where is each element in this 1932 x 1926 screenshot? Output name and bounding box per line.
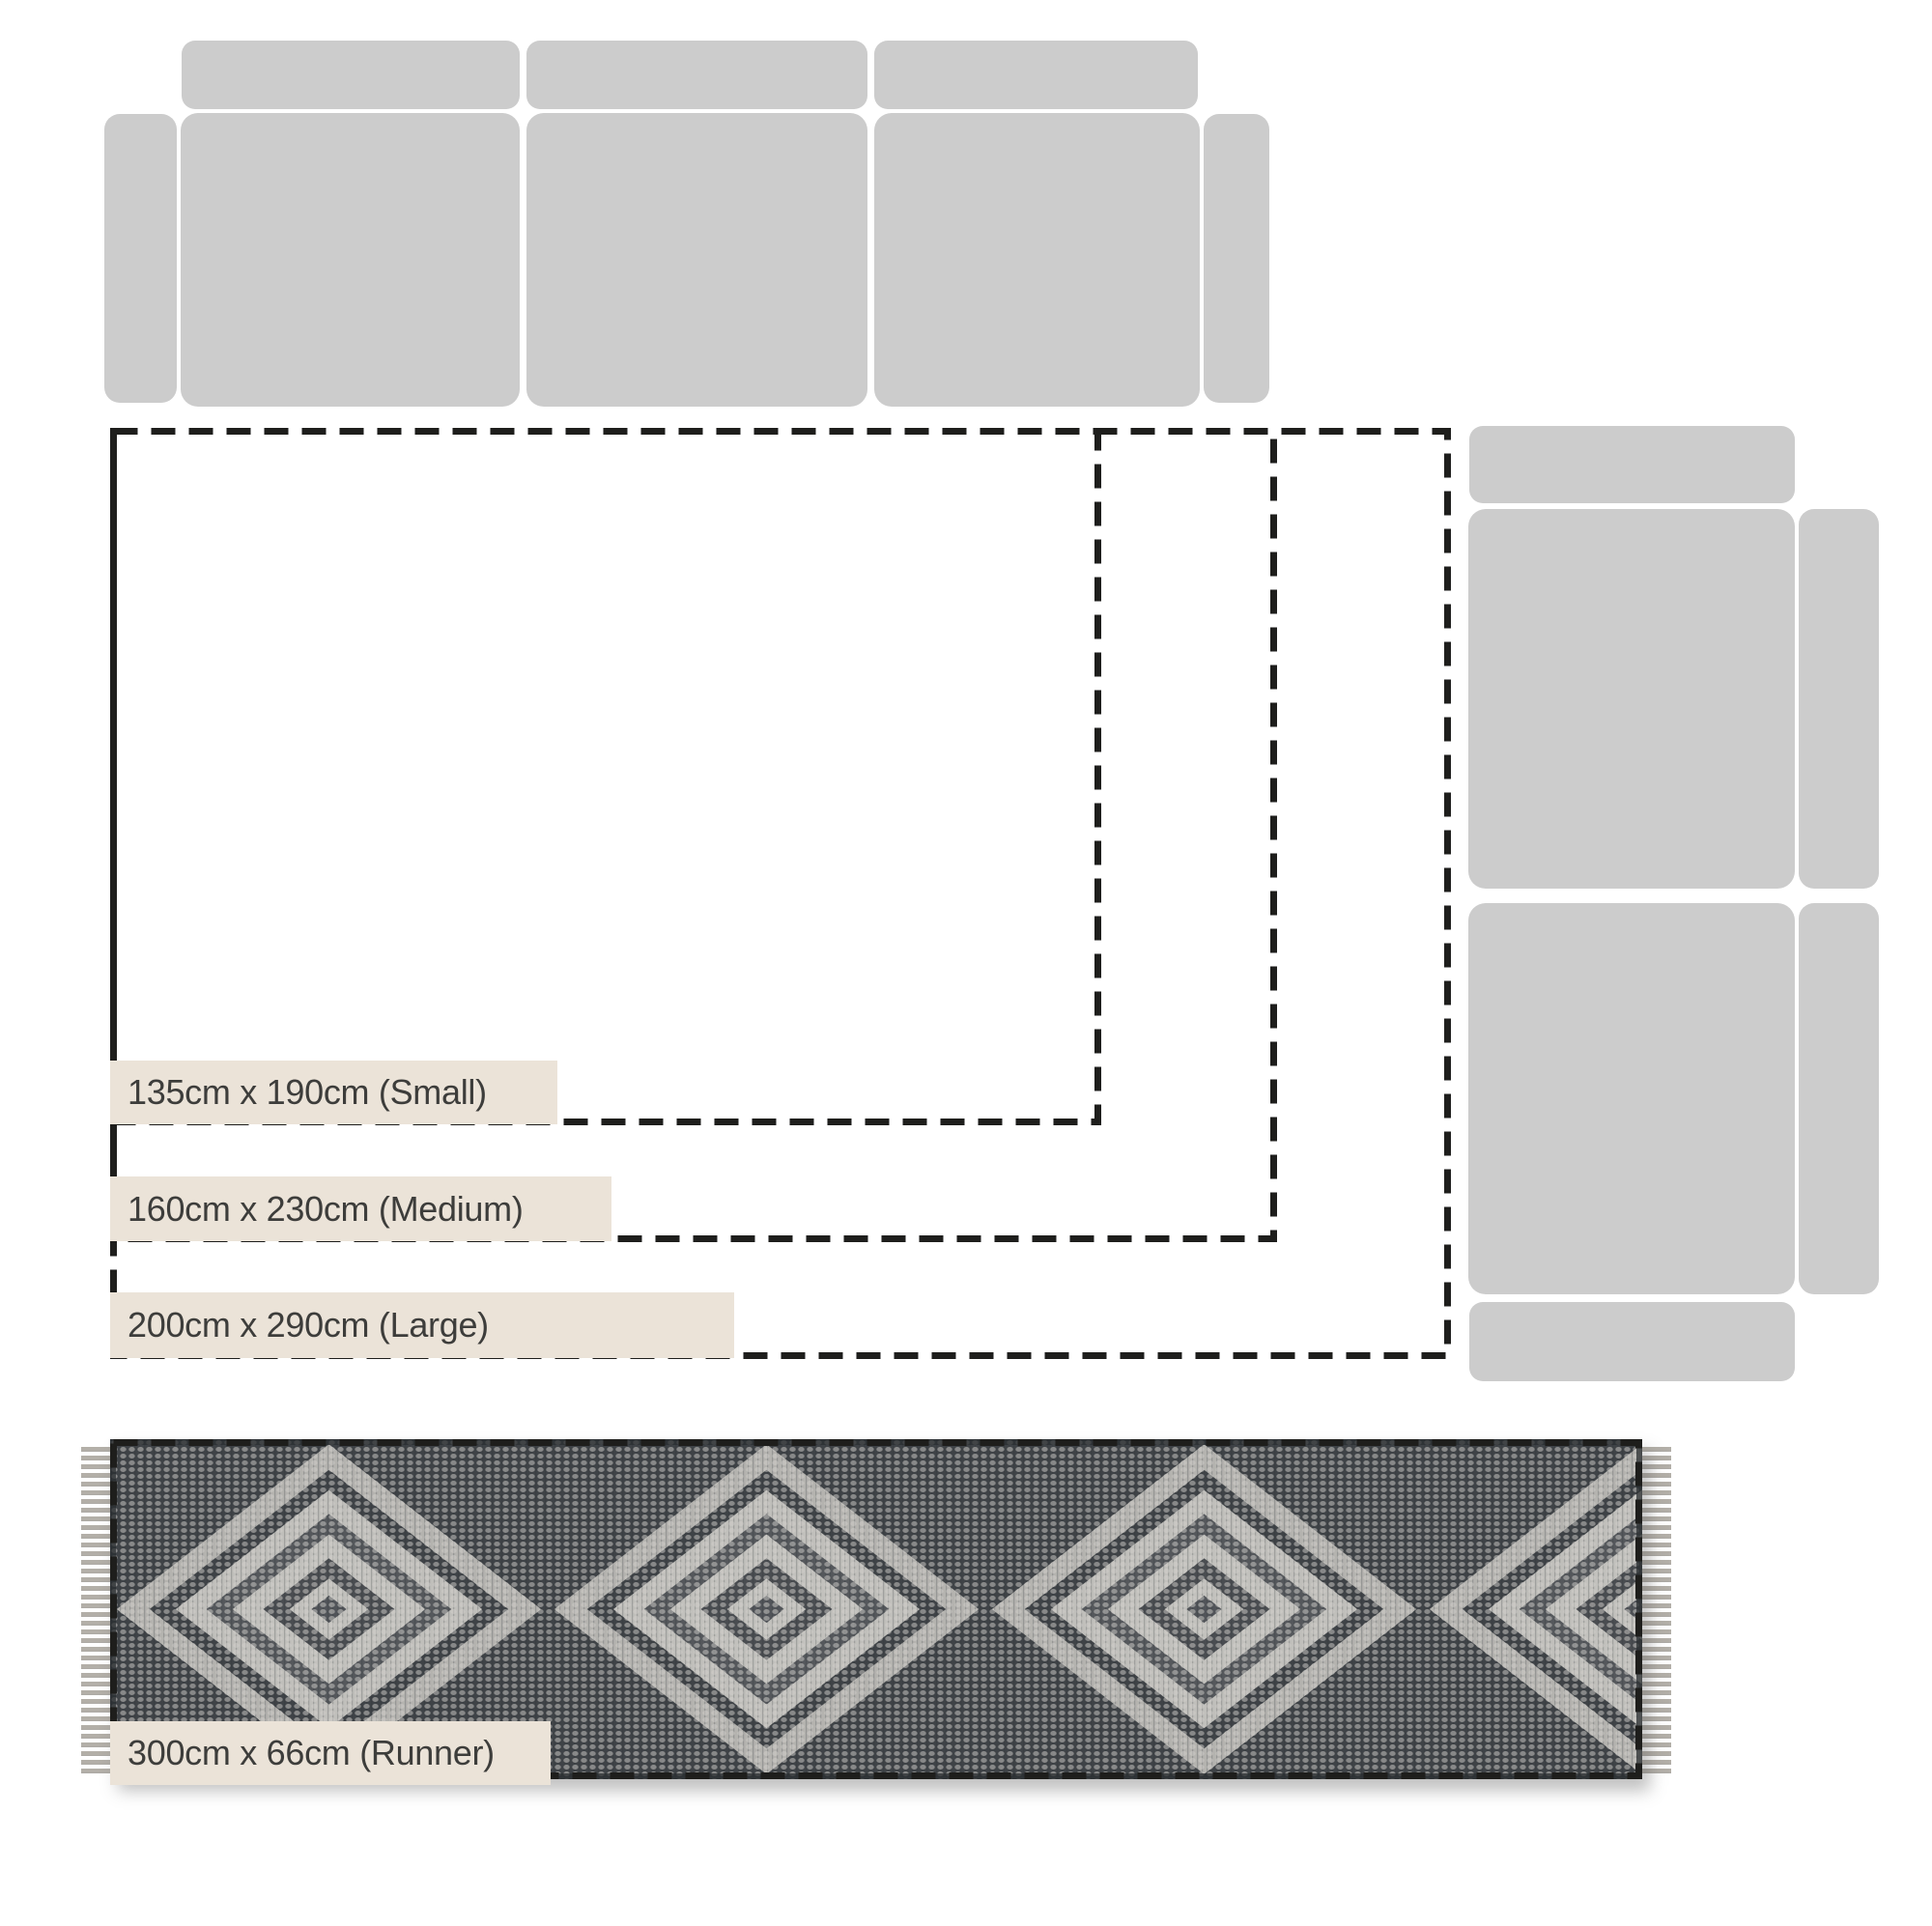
sofa-armrest-left bbox=[104, 114, 177, 403]
size-label-large: 200cm x 290cm (Large) bbox=[110, 1292, 734, 1358]
sofa-seat-cushion bbox=[1468, 509, 1795, 889]
sofa-back-cushion bbox=[1469, 426, 1795, 503]
rug-fringe-right bbox=[1642, 1447, 1671, 1773]
size-label-small: 135cm x 190cm (Small) bbox=[110, 1061, 557, 1124]
sofa-seat-cushion bbox=[874, 113, 1200, 407]
rug-fringe-left bbox=[81, 1447, 110, 1773]
sofa-back-cushion bbox=[182, 41, 520, 109]
sofa-armrest-lower bbox=[1799, 903, 1879, 1294]
sofa-back-cushion bbox=[526, 41, 867, 109]
rug-size-guide: 135cm x 190cm (Small) 160cm x 230cm (Med… bbox=[0, 0, 1932, 1926]
sofa-back-cushion bbox=[1469, 1302, 1795, 1381]
sofa-armrest-upper bbox=[1799, 509, 1879, 889]
sofa-seat-cushion bbox=[181, 113, 520, 407]
sofa-seat-cushion bbox=[526, 113, 867, 407]
size-label-runner: 300cm x 66cm (Runner) bbox=[110, 1721, 551, 1785]
size-outline-small bbox=[114, 432, 1098, 1122]
sofa-back-cushion bbox=[874, 41, 1198, 109]
size-label-medium: 160cm x 230cm (Medium) bbox=[110, 1176, 611, 1241]
sofa-seat-cushion bbox=[1468, 903, 1795, 1294]
sofa-armrest-right bbox=[1204, 114, 1269, 403]
